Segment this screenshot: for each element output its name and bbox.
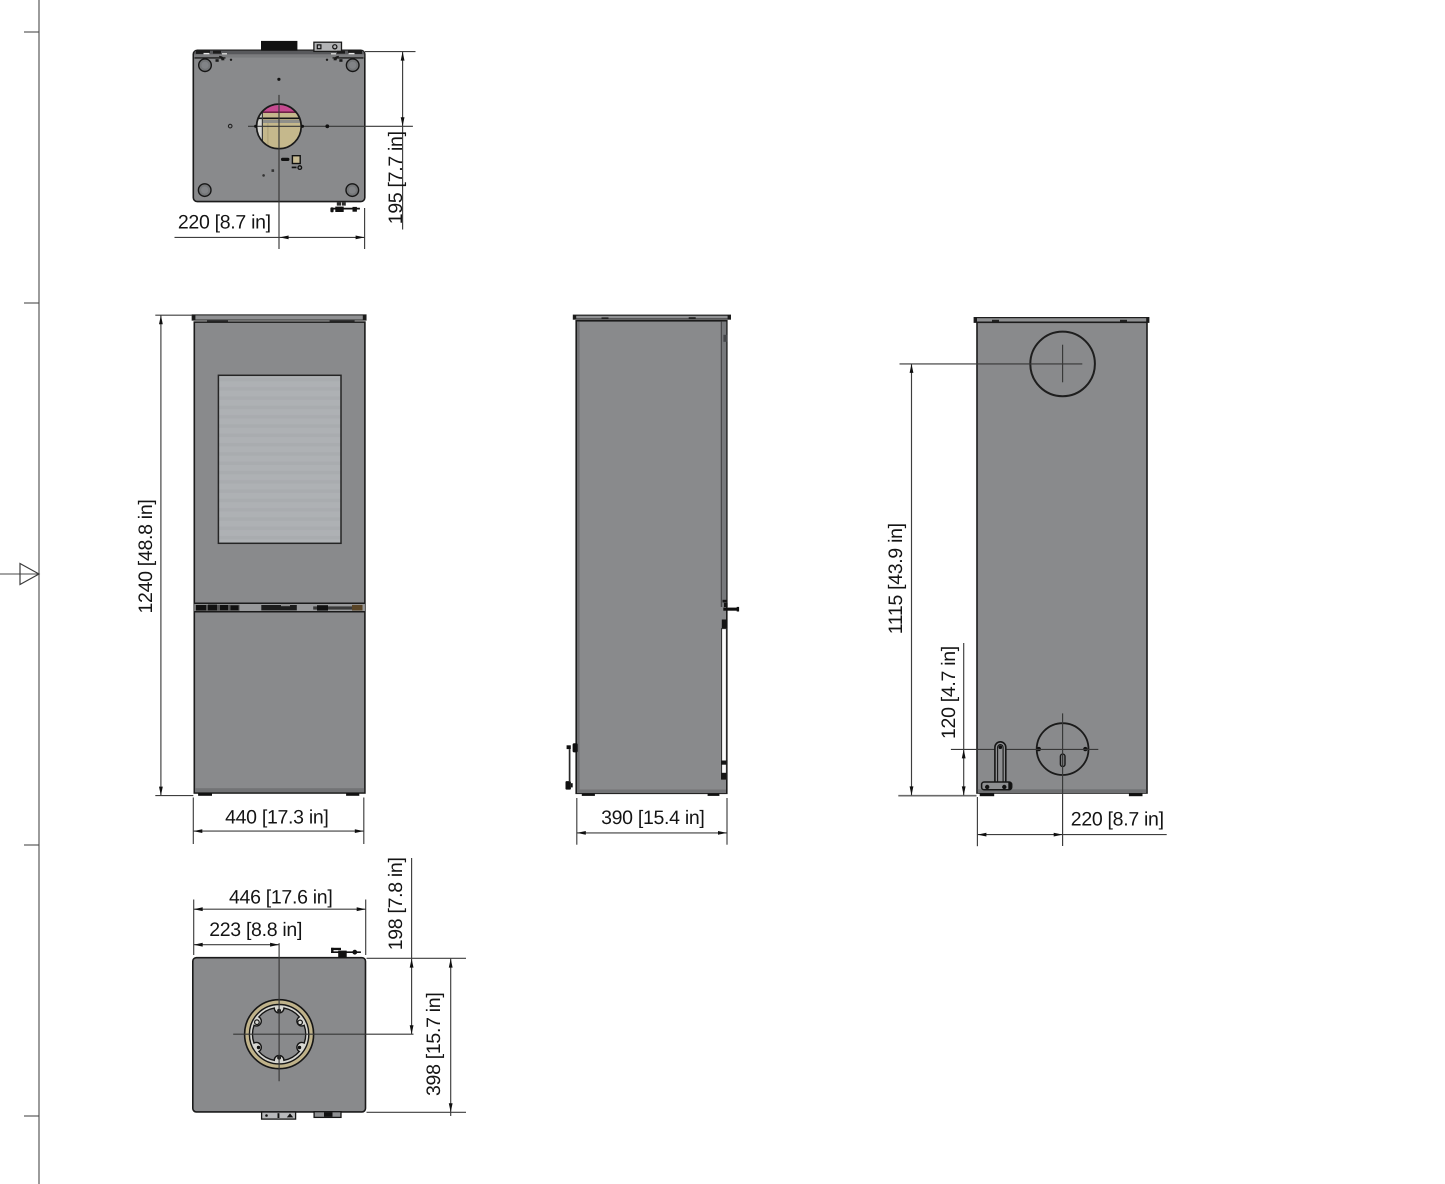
svg-text:446 [17.6 in]: 446 [17.6 in]	[229, 887, 332, 909]
svg-text:390 [15.4 in]: 390 [15.4 in]	[601, 807, 704, 829]
svg-text:220 [8.7 in]: 220 [8.7 in]	[1071, 809, 1164, 831]
svg-text:220 [8.7 in]: 220 [8.7 in]	[178, 212, 271, 234]
svg-text:398 [15.7 in]: 398 [15.7 in]	[423, 993, 445, 1096]
svg-text:198 [7.8 in]: 198 [7.8 in]	[385, 857, 407, 950]
svg-text:440 [17.3 in]: 440 [17.3 in]	[225, 807, 328, 829]
svg-text:1240 [48.8 in]: 1240 [48.8 in]	[135, 500, 157, 614]
svg-text:195 [7.7 in]: 195 [7.7 in]	[385, 131, 407, 224]
svg-text:1115 [43.9 in]: 1115 [43.9 in]	[885, 523, 907, 634]
svg-text:223 [8.8 in]: 223 [8.8 in]	[209, 919, 302, 941]
svg-text:120 [4.7 in]: 120 [4.7 in]	[938, 646, 960, 739]
